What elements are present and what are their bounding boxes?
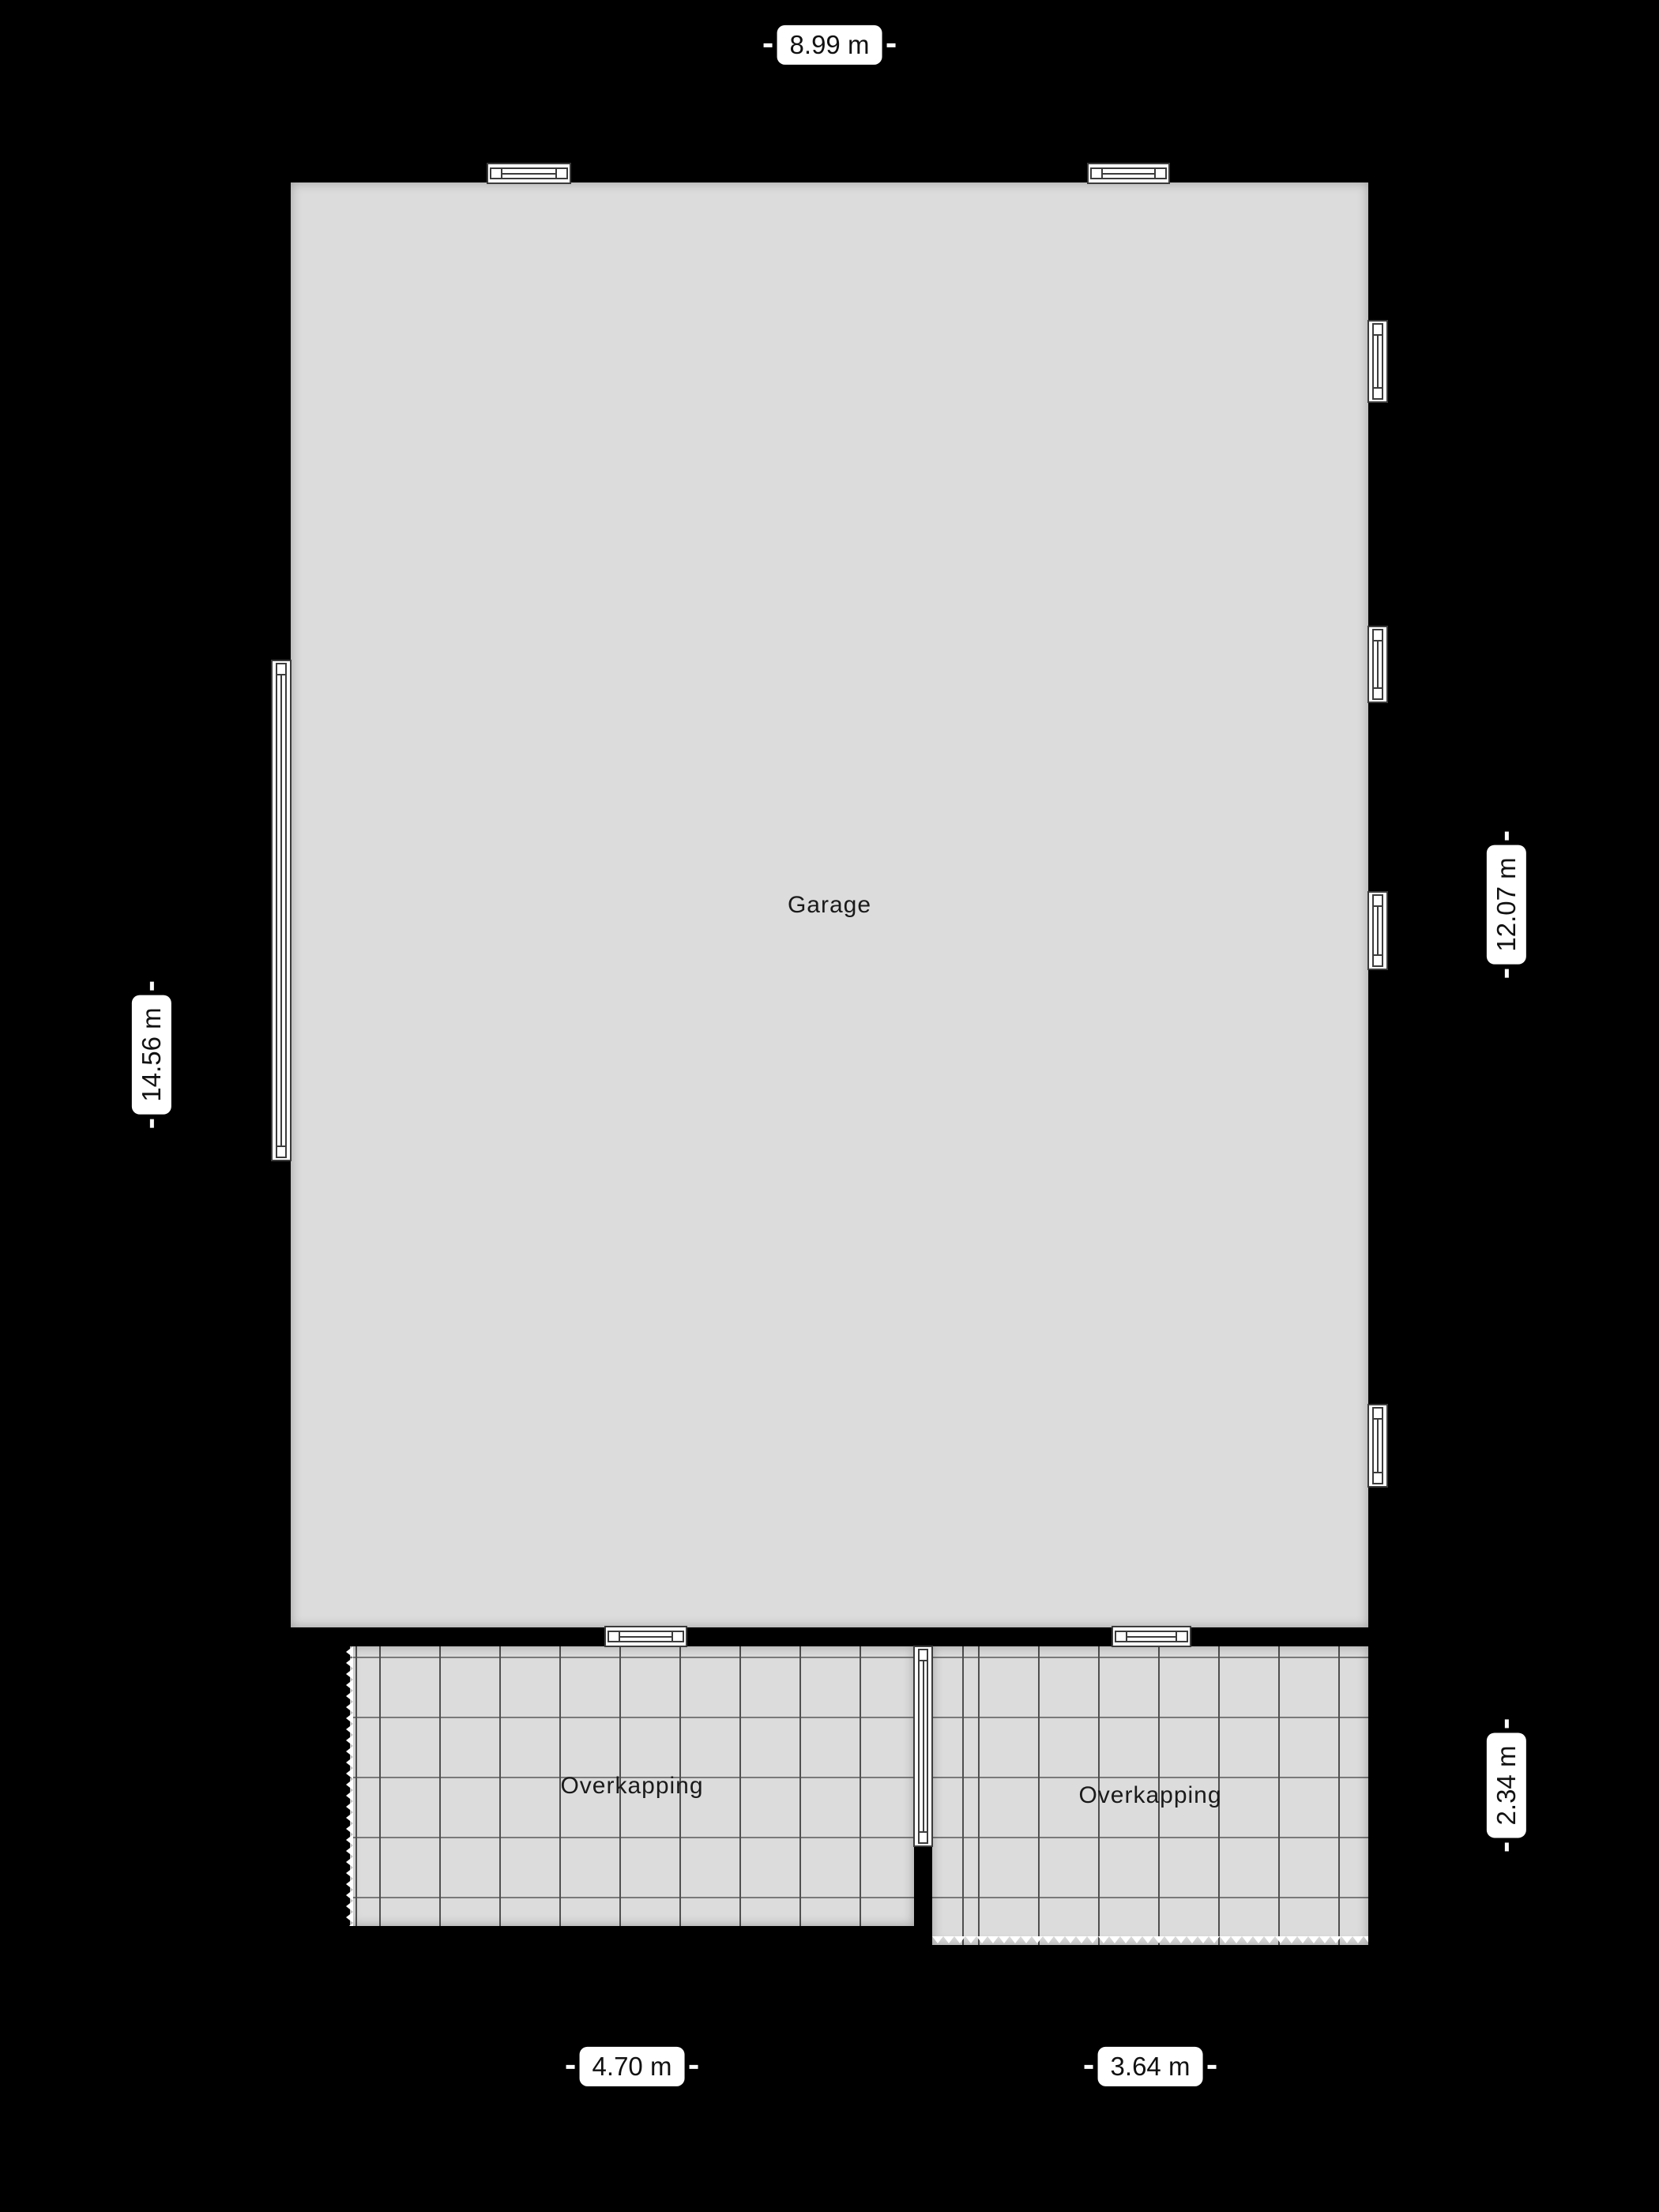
window-glass <box>1372 907 1383 954</box>
dimension-label-right-lower: 2.34 m <box>1487 1733 1526 1838</box>
window-cap <box>490 167 502 179</box>
window-cap <box>918 1831 928 1844</box>
open-edge-zigzag-bottom <box>932 1936 1368 1946</box>
window-glass <box>1127 1631 1176 1642</box>
dimension-label-bottom-left: 4.70 m <box>580 2047 685 2086</box>
window-cap <box>608 1631 620 1642</box>
window-cap <box>1372 629 1383 641</box>
window-icon-right-2 <box>1367 626 1388 703</box>
window-glass <box>1103 167 1154 179</box>
window-cap <box>1372 1472 1383 1484</box>
window-cap <box>1176 1631 1188 1642</box>
window-cap <box>1372 894 1383 907</box>
window-icon-left <box>271 660 292 1161</box>
window-glass <box>620 1631 671 1642</box>
dimension-label-top: 8.99 m <box>777 25 882 65</box>
room-garage: Garage <box>291 182 1368 1627</box>
window-icon-top-2 <box>1087 163 1170 184</box>
window-icon-right-3 <box>1367 891 1388 970</box>
window-cap <box>276 1145 287 1158</box>
room-overkapping-left: Overkapping <box>350 1646 914 1926</box>
dimension-label-left: 14.56 m <box>132 995 171 1114</box>
dimension-label-right-upper: 12.07 m <box>1487 845 1526 964</box>
window-cap <box>1372 954 1383 967</box>
window-icon-bottom-1 <box>604 1626 687 1647</box>
window-cap <box>1090 167 1103 179</box>
room-overkapping-left-label: Overkapping <box>560 1773 703 1800</box>
window-glass <box>502 167 555 179</box>
window-cap <box>1372 687 1383 700</box>
window-cap <box>671 1631 684 1642</box>
window-cap <box>276 663 287 675</box>
dimension-label-bottom-right: 3.64 m <box>1098 2047 1203 2086</box>
window-icon-right-1 <box>1367 320 1388 403</box>
window-glass <box>918 1661 928 1831</box>
garage-bottom-wall <box>291 1627 1389 1646</box>
window-icon-right-4 <box>1367 1404 1388 1488</box>
window-cap <box>1372 387 1383 400</box>
window-cap <box>1115 1631 1127 1642</box>
window-glass <box>1372 336 1383 387</box>
window-cap <box>1372 1407 1383 1420</box>
window-cap <box>1154 167 1167 179</box>
floorplan-canvas: Garage Overkapping Overkapping <box>0 0 1659 2212</box>
room-overkapping-right: Overkapping <box>932 1646 1368 1945</box>
window-icon-top-1 <box>487 163 571 184</box>
window-glass <box>276 675 287 1145</box>
window-cap <box>1372 323 1383 336</box>
window-icon-divider <box>913 1646 933 1847</box>
open-edge-zigzag-left <box>344 1646 353 1926</box>
window-icon-bottom-2 <box>1112 1626 1191 1647</box>
window-glass <box>1372 1420 1383 1472</box>
window-cap <box>918 1649 928 1661</box>
room-garage-label: Garage <box>788 892 871 919</box>
room-overkapping-right-label: Overkapping <box>1078 1782 1221 1809</box>
window-glass <box>1372 641 1383 687</box>
window-cap <box>555 167 568 179</box>
